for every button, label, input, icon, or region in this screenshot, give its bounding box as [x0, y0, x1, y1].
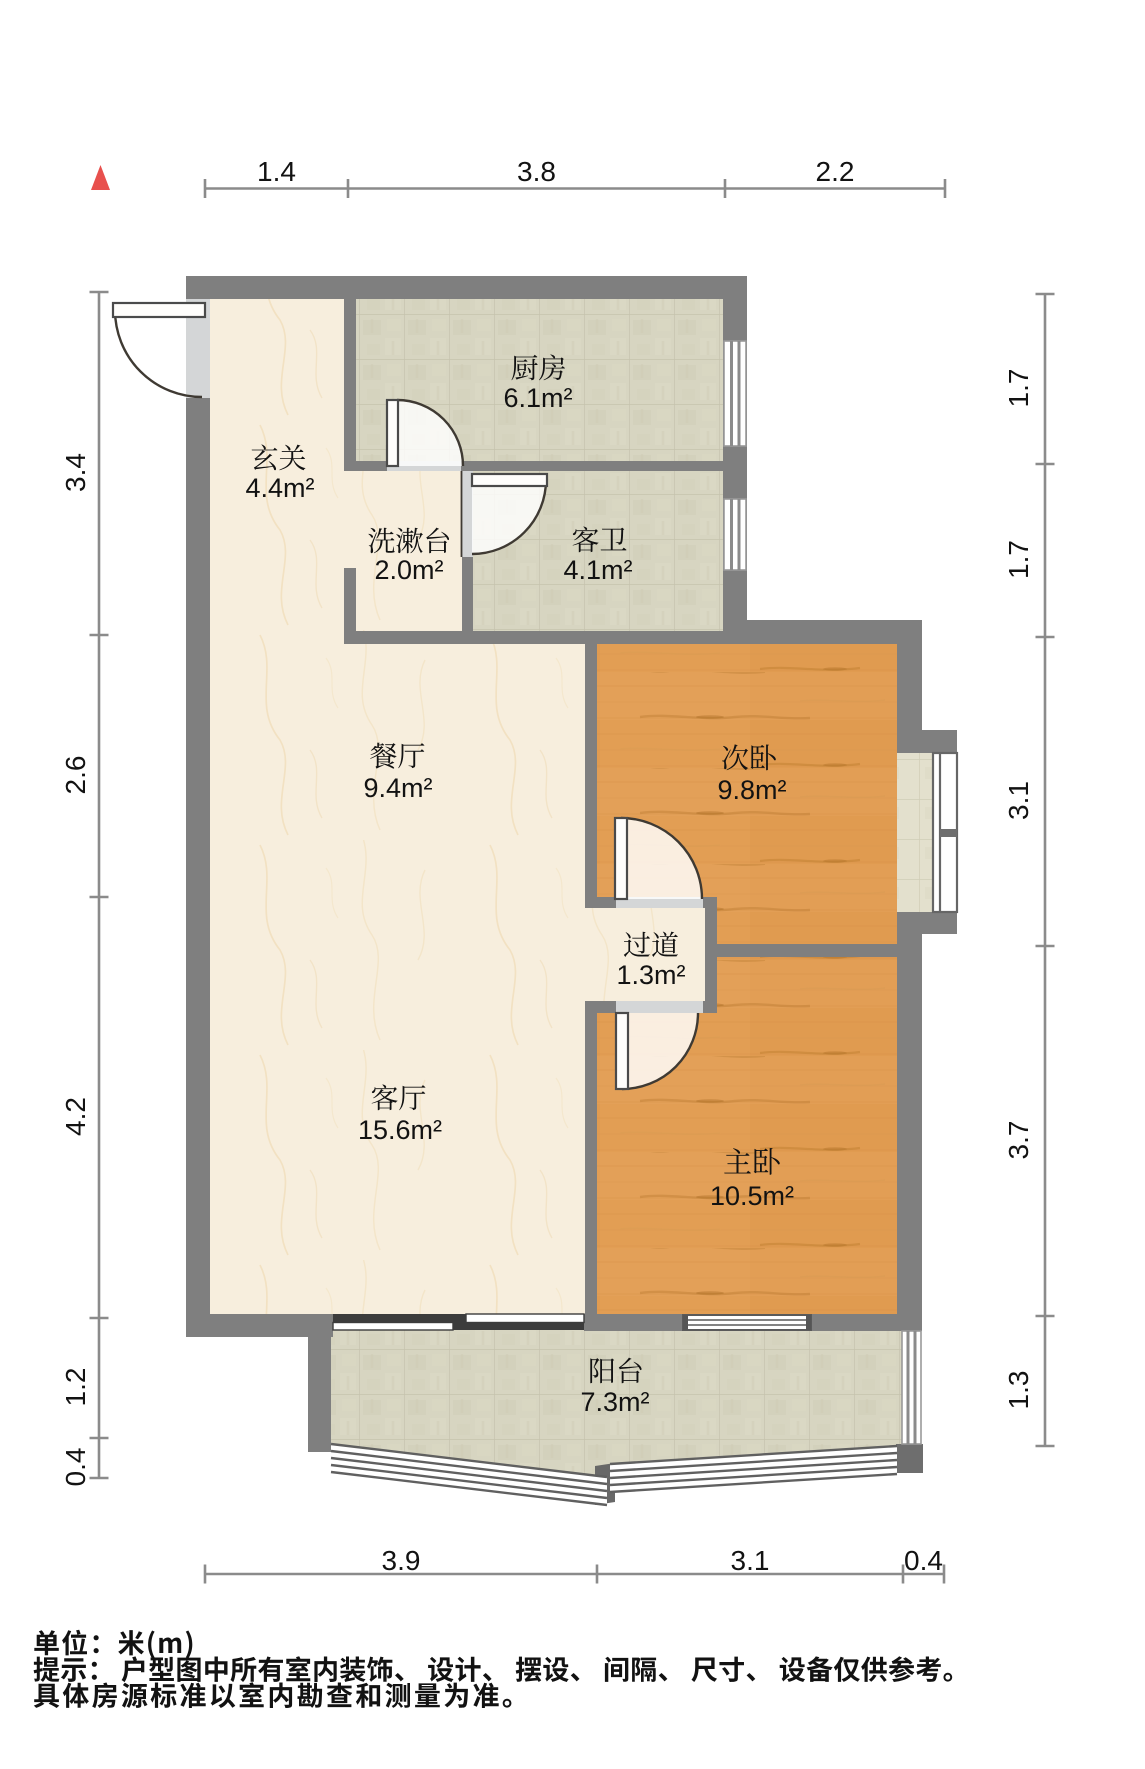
svg-text:3.7: 3.7: [1003, 1121, 1034, 1160]
svg-text:3.9: 3.9: [382, 1545, 421, 1576]
svg-text:2.0m²: 2.0m²: [374, 555, 443, 585]
svg-text:10.5m²: 10.5m²: [710, 1181, 794, 1211]
svg-text:0.4: 0.4: [904, 1545, 943, 1576]
svg-text:3.4: 3.4: [60, 453, 91, 492]
svg-text:1.3m²: 1.3m²: [616, 960, 685, 990]
svg-text:4.1m²: 4.1m²: [563, 555, 632, 585]
svg-text:1.2: 1.2: [60, 1368, 91, 1407]
svg-text:0.4: 0.4: [60, 1448, 91, 1487]
svg-text:3.1: 3.1: [731, 1545, 770, 1576]
svg-text:2.2: 2.2: [816, 156, 855, 187]
svg-text:3.1: 3.1: [1003, 781, 1034, 820]
svg-text:1.7: 1.7: [1003, 369, 1034, 408]
svg-text:4.4m²: 4.4m²: [245, 473, 314, 503]
svg-text:4.2: 4.2: [60, 1097, 91, 1136]
svg-text:15.6m²: 15.6m²: [358, 1115, 442, 1145]
svg-text:7.3m²: 7.3m²: [580, 1387, 649, 1417]
svg-text:9.4m²: 9.4m²: [363, 773, 432, 803]
svg-text:9.8m²: 9.8m²: [717, 775, 786, 805]
svg-text:6.1m²: 6.1m²: [503, 383, 572, 413]
svg-text:1.4: 1.4: [257, 156, 296, 187]
svg-text:2.6: 2.6: [60, 756, 91, 795]
svg-text:1.7: 1.7: [1003, 540, 1034, 579]
svg-text:3.8: 3.8: [517, 156, 556, 187]
svg-text:1.3: 1.3: [1003, 1371, 1034, 1410]
